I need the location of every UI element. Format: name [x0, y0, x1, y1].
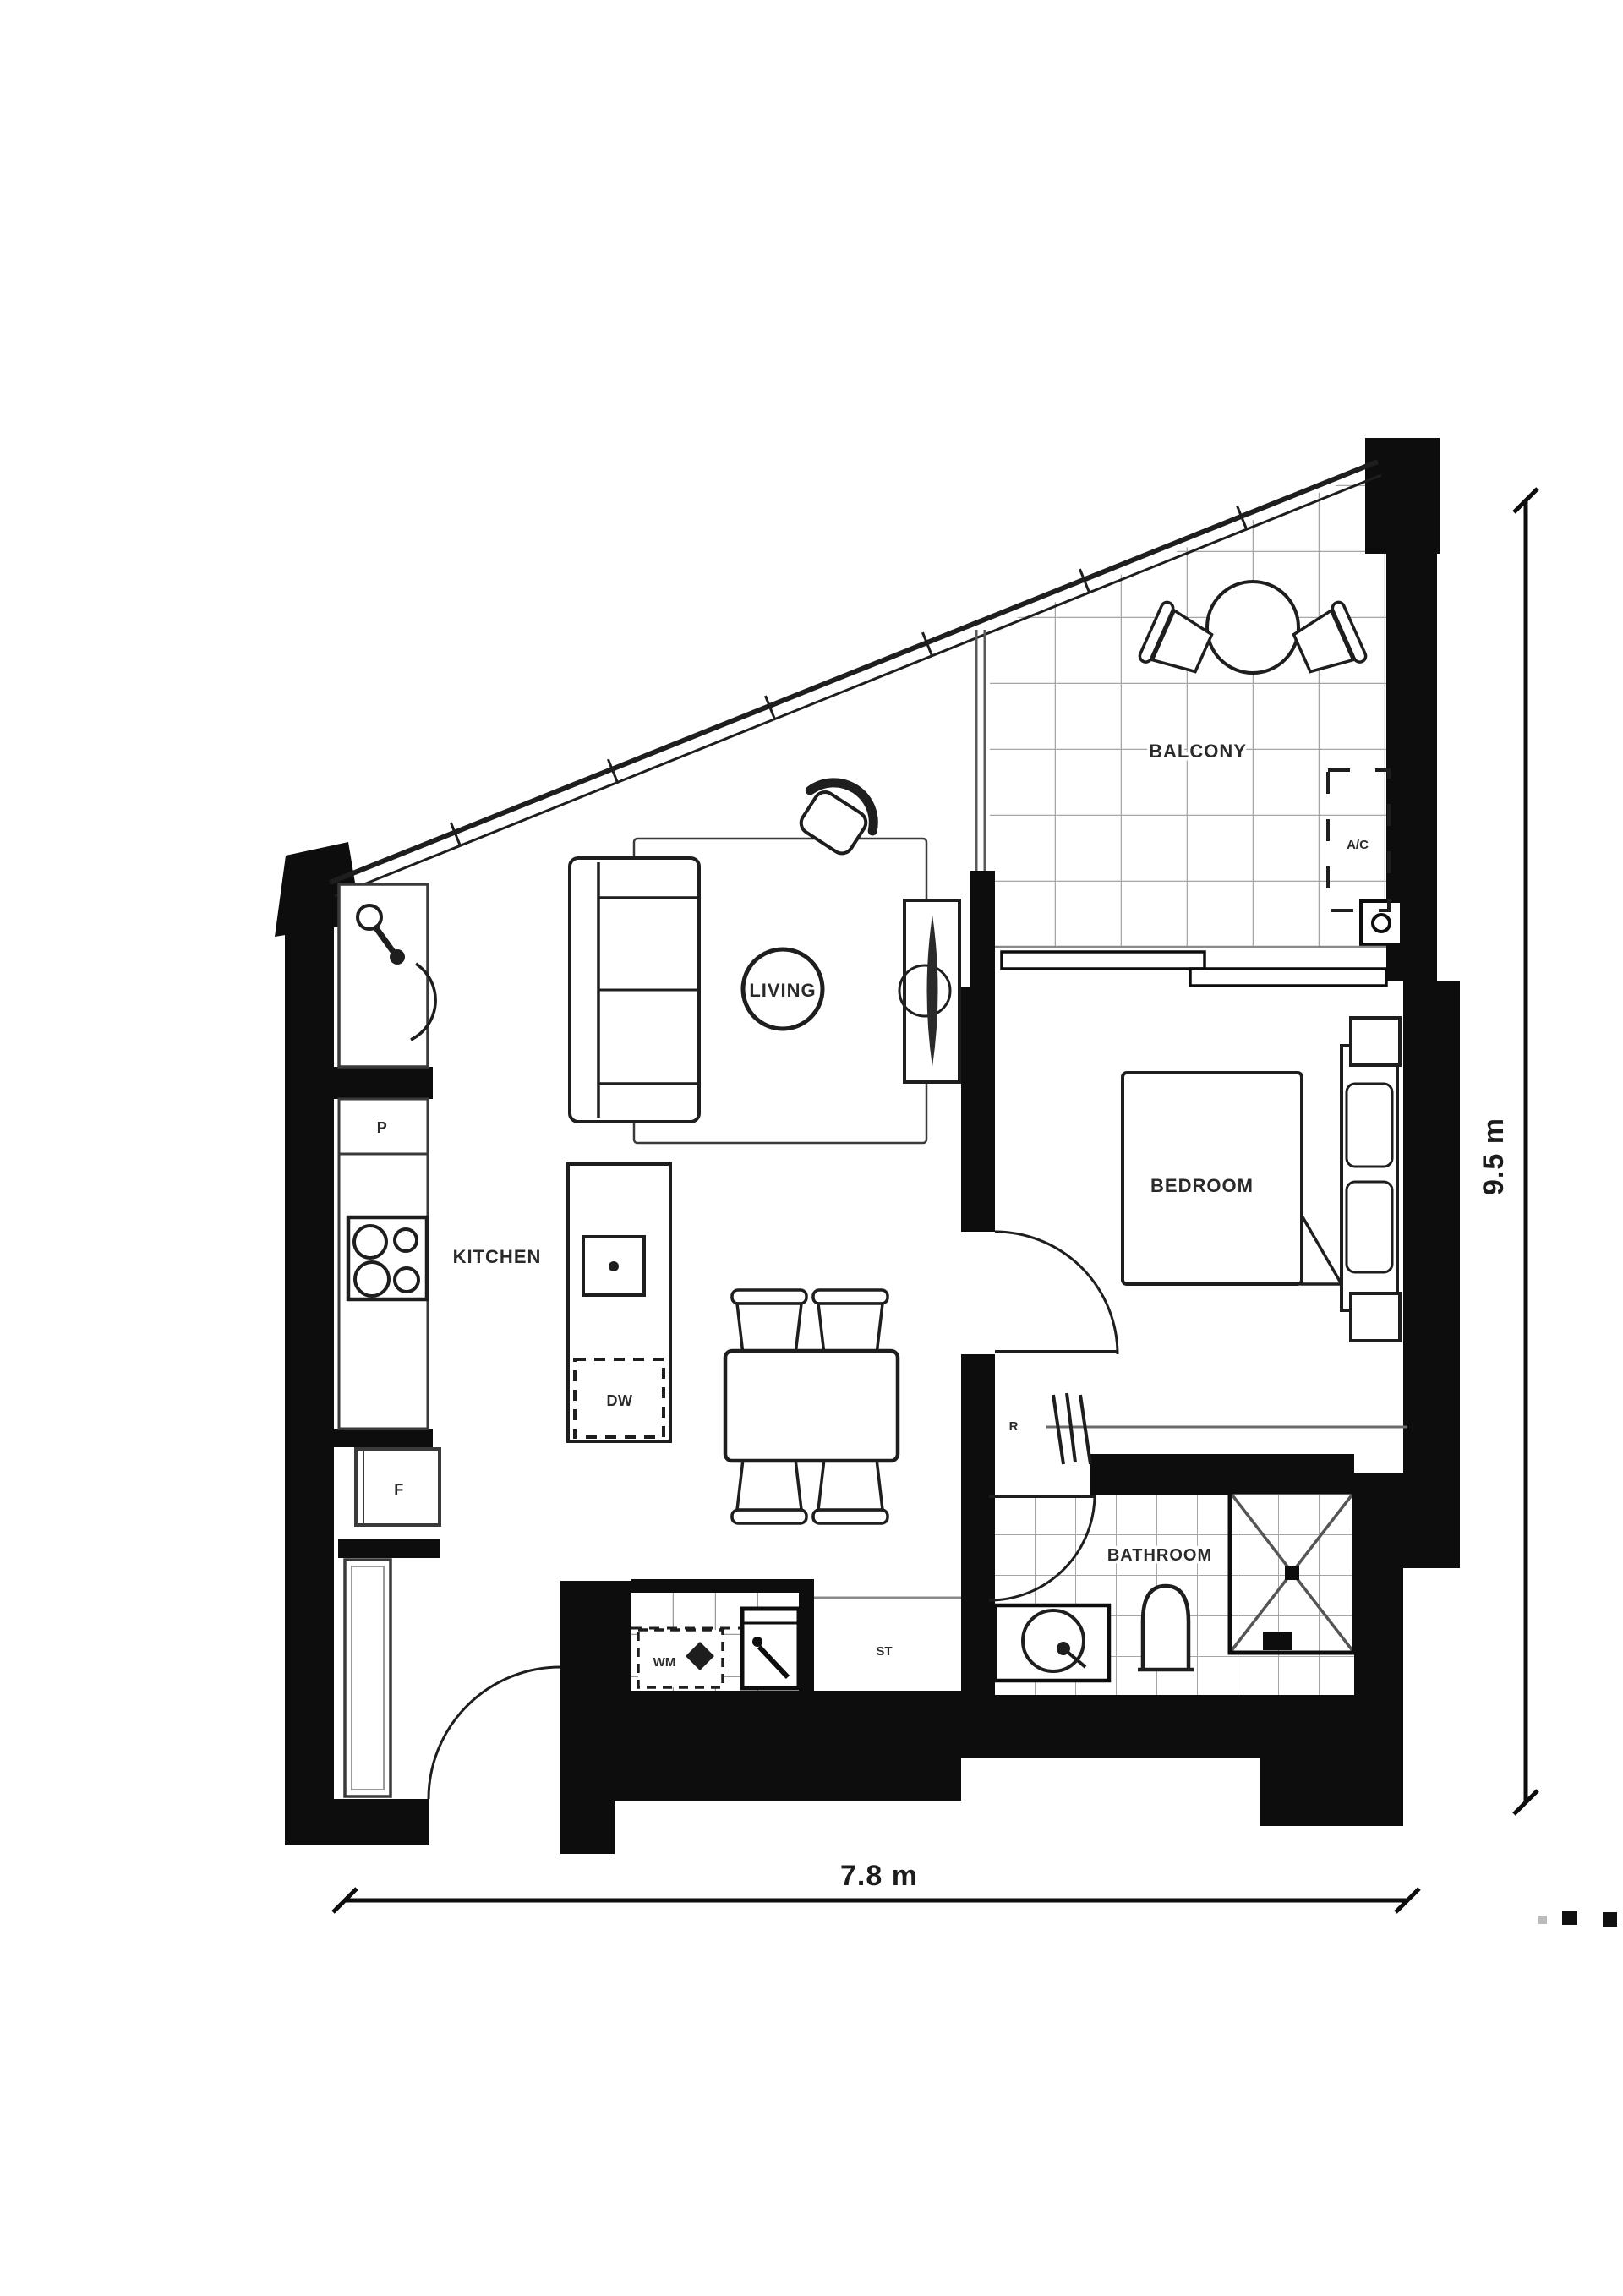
tv-unit-icon — [899, 900, 959, 1082]
kitchen-bench-break-2 — [334, 1429, 433, 1447]
living-bedroom-wall-upper — [961, 987, 995, 1232]
bathroom-bottom-wall — [961, 1695, 1403, 1758]
dining-table-icon — [725, 1351, 898, 1461]
laundry-top-wall — [631, 1579, 814, 1593]
armchair-icon — [790, 768, 886, 861]
robe-label: R — [1009, 1419, 1019, 1434]
cooktop-bench — [339, 1154, 428, 1429]
washing-machine-label: WM — [653, 1655, 676, 1670]
fridge: F — [356, 1449, 440, 1525]
toilet-icon — [1138, 1586, 1194, 1670]
left-wall — [285, 879, 334, 1845]
bathroom-door-stub — [961, 1454, 989, 1495]
top-right-corner-block — [1365, 438, 1440, 554]
sofa-icon — [570, 858, 699, 1122]
entry-door-block — [560, 1663, 615, 1854]
page-dots-icon — [1538, 1911, 1617, 1927]
pantry: P — [339, 1099, 428, 1154]
dishwasher-label: DW — [607, 1392, 633, 1409]
kitchen-island: DW — [568, 1164, 670, 1441]
vanity-basin-icon — [995, 1605, 1109, 1681]
washing-machine-icon: WM — [638, 1630, 723, 1687]
depth-dimension: 9.5 m — [1478, 489, 1538, 1814]
dining-set — [725, 1290, 898, 1523]
balcony-table-icon — [1207, 582, 1298, 673]
depth-dimension-label: 9.5 m — [1478, 1118, 1510, 1195]
kitchen-bench-break-1 — [334, 1067, 433, 1099]
floor-plan: P F DW KITCHEN — [0, 0, 1623, 2296]
air-conditioner-label: A/C — [1347, 838, 1369, 852]
living-balcony-divider — [970, 871, 995, 987]
bedroom-balcony-sliding-door — [995, 947, 1386, 986]
shower-head-icon — [1263, 1632, 1292, 1650]
floor-plan-page: P F DW KITCHEN — [0, 0, 1623, 2296]
kitchen-sink-bench — [339, 884, 435, 1067]
nightstand-icon — [1351, 1018, 1400, 1065]
robe-bathroom-wall — [1090, 1454, 1354, 1495]
se-step-block — [1260, 1758, 1403, 1826]
wardrobe-rail-icon — [1046, 1393, 1407, 1464]
bathroom-label: BATHROOM — [1107, 1546, 1212, 1565]
entry-door-arc — [429, 1667, 560, 1799]
storage-room: ST — [814, 1598, 961, 1659]
bedroom-label: BEDROOM — [1150, 1175, 1254, 1196]
living-label-badge: LIVING — [743, 949, 822, 1029]
living-label: LIVING — [749, 980, 816, 1001]
kitchen-bench-break-3 — [338, 1539, 440, 1558]
hall-cabinet — [345, 1560, 391, 1796]
laundry-st-divider — [799, 1592, 814, 1691]
kitchen-label: KITCHEN — [453, 1246, 542, 1267]
dining-chair-icon — [813, 1459, 888, 1523]
width-dimension: 7.8 m — [333, 1860, 1419, 1912]
dining-chair-icon — [813, 1290, 888, 1354]
pantry-label: P — [377, 1119, 388, 1136]
shower-icon — [1230, 1492, 1354, 1653]
bedroom-door-arc — [995, 1232, 1118, 1354]
laundry-tub-icon — [742, 1609, 799, 1688]
storage-label: ST — [876, 1644, 892, 1659]
balcony-label: BALCONY — [1149, 741, 1247, 762]
dining-chair-icon — [732, 1290, 806, 1354]
drain-icon — [1361, 901, 1402, 945]
nightstand-icon — [1351, 1293, 1400, 1341]
living-balcony-window — [976, 630, 985, 871]
width-dimension-label: 7.8 m — [840, 1860, 918, 1892]
bottom-left-wall — [285, 1799, 429, 1845]
living-bedroom-wall-lower — [961, 1354, 995, 1695]
dining-chair-icon — [732, 1459, 806, 1523]
entry-bottom-wall — [560, 1691, 961, 1801]
fridge-label: F — [394, 1481, 404, 1498]
island-sink-icon — [583, 1237, 644, 1295]
